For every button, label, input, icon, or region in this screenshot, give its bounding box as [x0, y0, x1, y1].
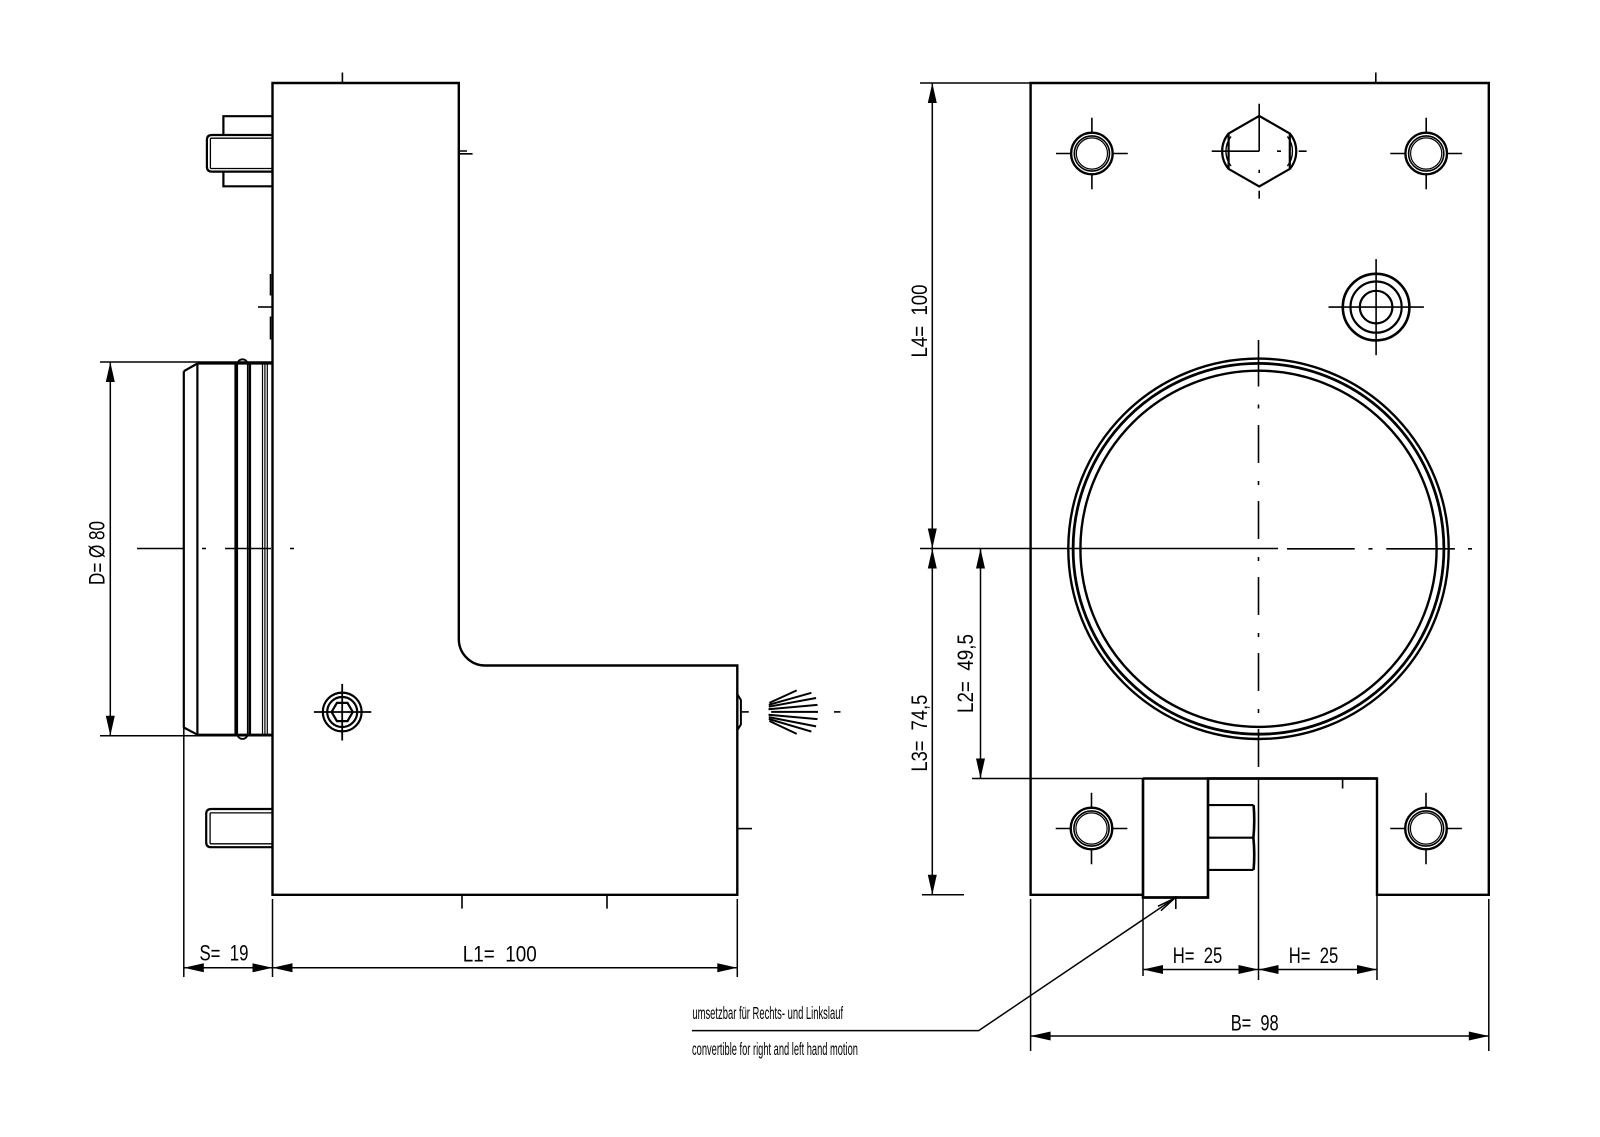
svg-text:convertible for right and left: convertible for right and left hand moti… — [692, 1039, 858, 1059]
svg-text:umsetzbar für Rechts- und Link: umsetzbar für Rechts- und Linkslauf — [692, 1003, 843, 1023]
svg-text:H= 25: H= 25 — [1289, 944, 1339, 969]
svg-text:D= Ø 80: D= Ø 80 — [86, 521, 111, 585]
svg-text:L3= 74,5: L3= 74,5 — [909, 695, 933, 772]
svg-text:H= 25: H= 25 — [1173, 944, 1223, 969]
svg-text:L4= 100: L4= 100 — [909, 284, 933, 357]
svg-text:L1= 100: L1= 100 — [463, 942, 537, 967]
svg-text:S= 19: S= 19 — [200, 941, 249, 966]
svg-text:B= 98: B= 98 — [1231, 1011, 1279, 1036]
svg-text:L2= 49,5: L2= 49,5 — [954, 634, 979, 713]
